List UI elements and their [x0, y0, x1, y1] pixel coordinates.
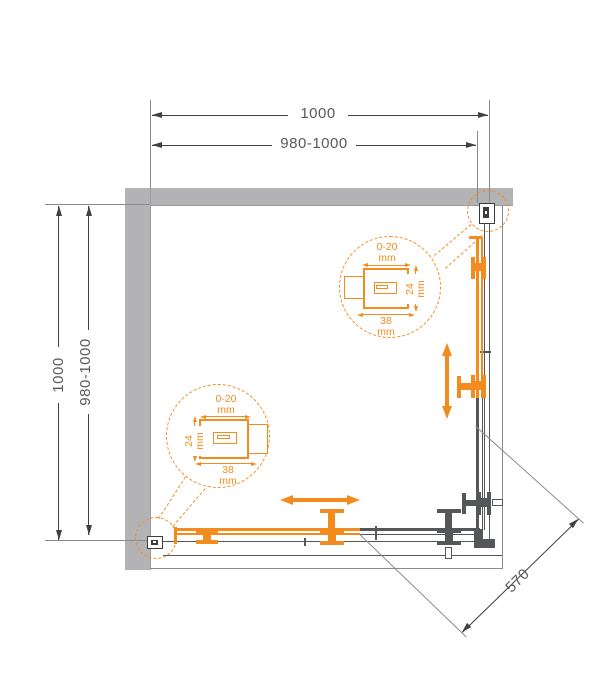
detail-lower-depth-up-arrow-icon: [193, 416, 197, 422]
ext-line-left-top: [45, 204, 150, 205]
profile-slot-lower: [213, 432, 237, 444]
detail-upper-width-right-arrow-icon: [409, 313, 415, 317]
detail-upper-adjust-left-arrow-icon: [362, 263, 368, 267]
roller-c-hub: [474, 263, 483, 271]
slide-arrow-vertical-shaft: [445, 355, 449, 407]
detail-lower-width-label: 38mm: [207, 465, 249, 487]
detail-lower-adjust-right-arrow-icon: [245, 415, 251, 419]
detail-upper-depth-down-arrow-icon: [414, 306, 418, 312]
callout-leader-bottom-2: [172, 484, 209, 526]
dim-left-outer-up-arrow-icon: [56, 206, 62, 216]
dim-diagonal-sw-arrow-icon: [460, 623, 471, 634]
tray-line-bottom-outer: [150, 568, 503, 569]
door-handle-b-stem: [328, 513, 335, 529]
detail-callout-lower: 0-20mm 24mm 38mm: [166, 384, 270, 488]
slide-arrow-vertical-down-icon: [442, 406, 452, 419]
roller-e-pin: [445, 547, 452, 559]
dim-top-outer-label: 1000: [288, 106, 348, 122]
dim-top-inner-right-arrow-icon: [466, 142, 476, 148]
dim-left-inner-up-arrow-icon: [86, 206, 92, 216]
dim-left-inner-label: 980-1000: [78, 330, 94, 414]
detail-upper-adjust-label: 0-20mm: [366, 242, 408, 264]
roller-e-bottom-flange: [437, 541, 461, 545]
slide-arrow-horizontal-right-icon: [347, 495, 360, 505]
dim-left-outer-down-arrow-icon: [56, 530, 62, 540]
roller-f-hub: [480, 498, 488, 507]
callout-leader-bottom-1: [158, 476, 186, 519]
dim-top-outer-left-arrow-icon: [152, 112, 162, 118]
profile-slot-upper: [374, 282, 397, 294]
door-handle-e-stem: [445, 513, 452, 529]
roller-b-hub: [328, 532, 336, 541]
detail-upper-depth-up-arrow-icon: [414, 265, 418, 271]
detail-upper-width-label: 38mm: [365, 316, 407, 338]
detail-upper-adjust-dim-line: [366, 265, 407, 266]
rail-right-fixed: [476, 398, 483, 547]
detail-lower-width-right-arrow-icon: [251, 462, 257, 466]
wall-left: [125, 188, 151, 570]
shower-enclosure-plan-diagram: 1000 980-1000 1000 980-1000 570: [0, 0, 600, 700]
corner-bracket-b: [474, 539, 495, 548]
roller-a-hub: [203, 532, 211, 541]
dim-top-outer-right-arrow-icon: [478, 112, 488, 118]
profile-wall-tab-lower: [247, 424, 268, 454]
detail-lower-adjust-left-arrow-icon: [200, 415, 206, 419]
ext-line-diag-b: [475, 426, 584, 524]
dim-left-inner-down-arrow-icon: [86, 525, 92, 535]
profile-wall-tab-upper: [344, 276, 365, 299]
wall-profile-top-right: [479, 203, 495, 224]
tray-line-right: [502, 205, 503, 568]
detail-callout-upper: 0-20mm 24mm 38mm: [339, 236, 441, 338]
detail-lower-width-left-arrow-icon: [195, 462, 201, 466]
rail-tick-small: [304, 538, 306, 546]
detail-lower-depth-label: 24mm: [184, 426, 206, 456]
detail-lower-adjust-label: 0-20mm: [205, 394, 247, 416]
wall-profile-bottom-left: [147, 536, 163, 549]
roller-d-hub: [474, 381, 483, 390]
roller-f-pin: [492, 499, 503, 506]
roller-b-bottom-flange: [320, 541, 344, 545]
rail-tick-bottom: [375, 526, 377, 540]
wall-top: [125, 188, 513, 206]
slide-arrow-horizontal-left-icon: [280, 495, 293, 505]
detail-upper-adjust-right-arrow-icon: [405, 263, 411, 267]
dim-top-inner-left-arrow-icon: [152, 142, 162, 148]
ext-line-top-left: [150, 100, 151, 188]
dim-diagonal-ne-arrow-icon: [569, 517, 580, 528]
slide-arrow-vertical-up-icon: [442, 343, 452, 356]
ext-line-top-right-outer: [489, 100, 490, 203]
dim-top-inner-label: 980-1000: [272, 136, 356, 152]
detail-upper-depth-label: 24mm: [405, 274, 427, 304]
roller-e-hub: [445, 532, 453, 541]
detail-lower-adjust-dim-line: [204, 416, 247, 417]
dim-left-outer-label: 1000: [51, 347, 67, 403]
slide-arrow-horizontal-shaft: [292, 498, 348, 502]
detail-upper-width-left-arrow-icon: [357, 313, 363, 317]
callout-leader-top-1: [434, 224, 471, 256]
